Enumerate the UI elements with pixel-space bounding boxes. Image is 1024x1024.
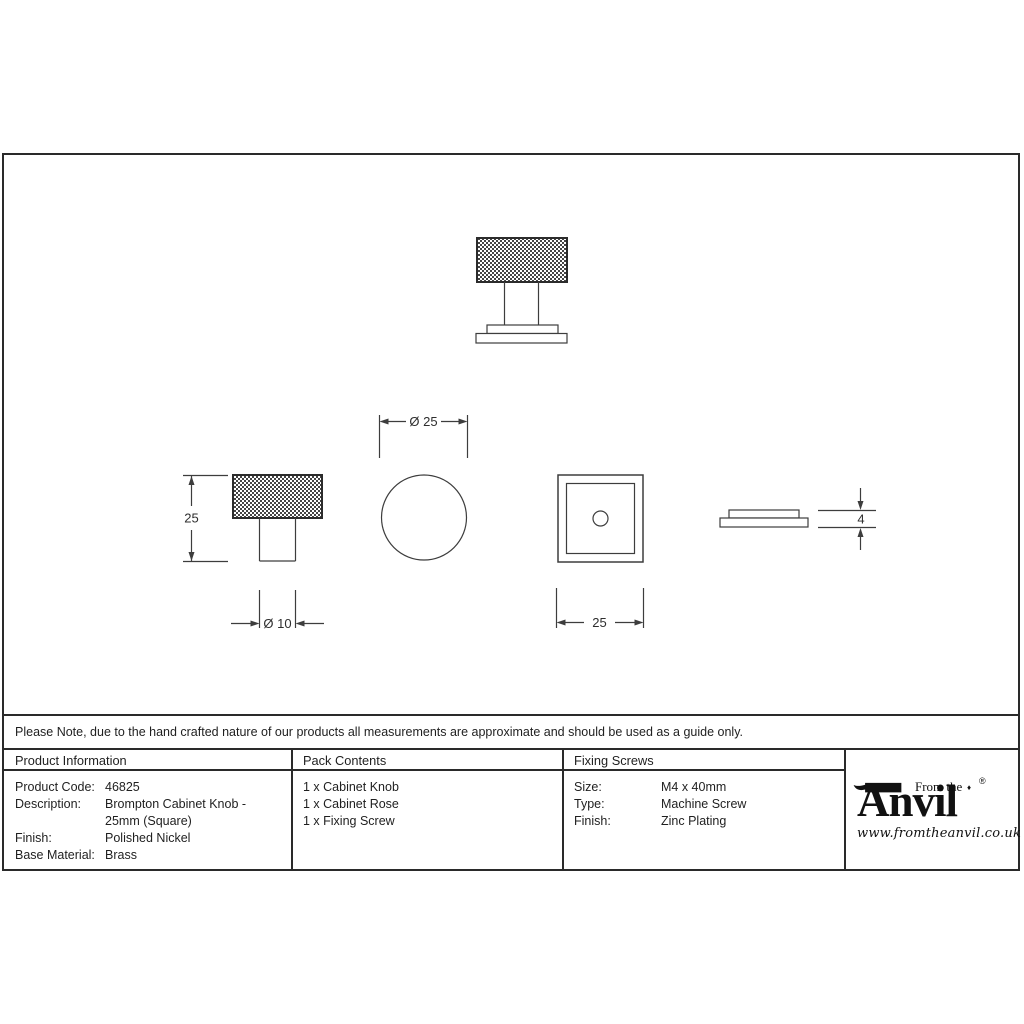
row-label: Type: bbox=[574, 796, 661, 813]
note-text: Please Note, due to the hand crafted nat… bbox=[15, 725, 743, 739]
fixing-screws-body: Size: M4 x 40mm Type: Machine Screw Fini… bbox=[564, 771, 844, 830]
table-row: Description: Brompton Cabinet Knob - 25m… bbox=[15, 796, 291, 830]
row-value: M4 x 40mm bbox=[661, 779, 726, 796]
row-label: Base Material: bbox=[15, 847, 105, 864]
diamond-icon: ♦ bbox=[967, 783, 971, 792]
row-label: Finish: bbox=[15, 830, 105, 847]
brand-tagline: From the bbox=[915, 779, 962, 795]
row-label: Finish: bbox=[574, 813, 661, 830]
fixing-screws-header: Fixing Screws bbox=[564, 750, 844, 771]
logo-main: Anvil From the ♦ ® bbox=[857, 777, 1007, 825]
row-value: Zinc Plating bbox=[661, 813, 726, 830]
table-row: Type: Machine Screw bbox=[574, 796, 844, 813]
row-label: Size: bbox=[574, 779, 661, 796]
product-information-body: Product Code: 46825 Description: Brompto… bbox=[4, 771, 291, 864]
product-information-column: Product Information Product Code: 46825 … bbox=[4, 750, 293, 869]
list-item: 1 x Cabinet Rose bbox=[303, 796, 562, 813]
brand-column: Anvil From the ♦ ® www.fromtheanvil.co.u… bbox=[846, 750, 1018, 869]
brand-website: www.fromtheanvil.co.uk bbox=[857, 826, 1007, 841]
drawing-frame bbox=[2, 153, 1020, 716]
row-value: Brass bbox=[105, 847, 281, 864]
table-row: Product Code: 46825 bbox=[15, 779, 291, 796]
registered-mark: ® bbox=[979, 776, 986, 786]
row-value: Brompton Cabinet Knob - 25mm (Square) bbox=[105, 796, 281, 830]
spec-table: Product Information Product Code: 46825 … bbox=[2, 748, 1020, 871]
product-spec-sheet: 25 Ø 10 Ø 25 bbox=[0, 0, 1024, 1024]
pack-contents-body: 1 x Cabinet Knob 1 x Cabinet Rose 1 x Fi… bbox=[293, 771, 562, 830]
fixing-screws-column: Fixing Screws Size: M4 x 40mm Type: Mach… bbox=[564, 750, 846, 869]
anvil-icon bbox=[853, 780, 902, 801]
note-bar: Please Note, due to the hand crafted nat… bbox=[2, 716, 1020, 748]
row-value: Polished Nickel bbox=[105, 830, 281, 847]
list-item: 1 x Fixing Screw bbox=[303, 813, 562, 830]
table-row: Base Material: Brass bbox=[15, 847, 291, 864]
row-label: Description: bbox=[15, 796, 105, 830]
row-label: Product Code: bbox=[15, 779, 105, 796]
table-row: Finish: Zinc Plating bbox=[574, 813, 844, 830]
table-row: Size: M4 x 40mm bbox=[574, 779, 844, 796]
table-row: Finish: Polished Nickel bbox=[15, 830, 291, 847]
row-value: 46825 bbox=[105, 779, 281, 796]
pack-contents-column: Pack Contents 1 x Cabinet Knob 1 x Cabin… bbox=[293, 750, 564, 869]
from-the-anvil-logo: Anvil From the ♦ ® www.fromtheanvil.co.u… bbox=[857, 777, 1007, 843]
product-information-header: Product Information bbox=[4, 750, 291, 771]
pack-contents-header: Pack Contents bbox=[293, 750, 562, 771]
row-value: Machine Screw bbox=[661, 796, 746, 813]
list-item: 1 x Cabinet Knob bbox=[303, 779, 562, 796]
